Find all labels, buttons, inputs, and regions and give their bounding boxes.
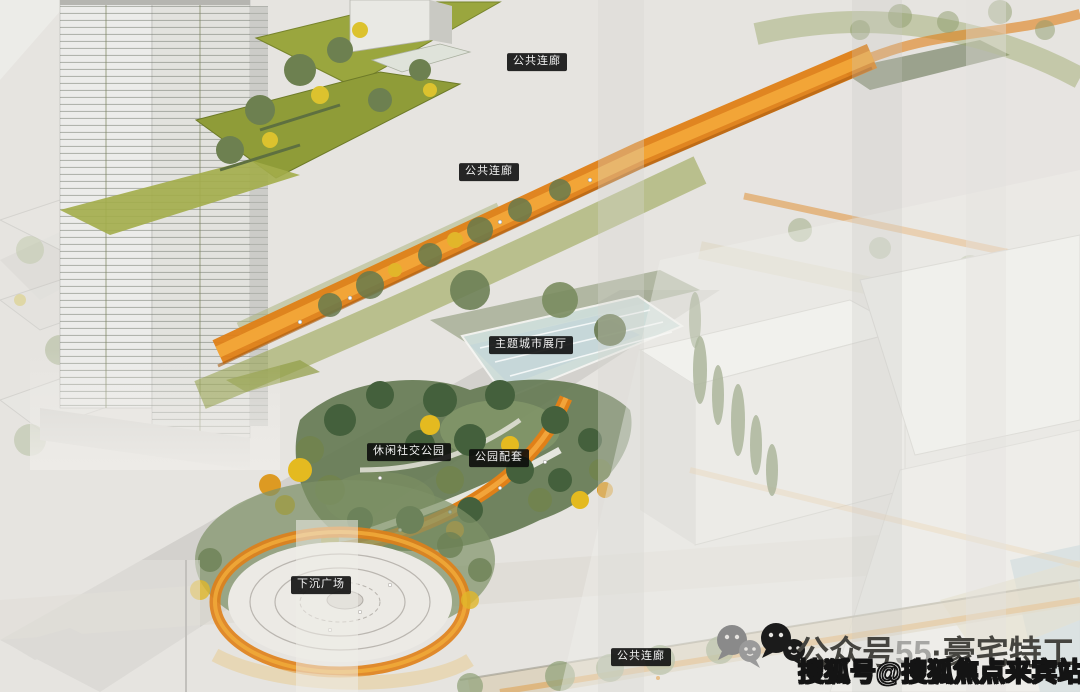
label-public-corridor-mid: 公共连廊 [459,163,519,181]
label-public-corridor-top: 公共连廊 [507,53,567,71]
label-leisure-social-park: 休闲社交公园 [367,443,451,461]
label-public-corridor-bottom: 公共连廊 [611,648,671,666]
wechat-bubbles-gray [717,625,761,668]
sohu-watermark: 搜狐号@搜狐焦点来宾站 [798,652,1080,689]
label-exhibition-hall: 主题城市展厅 [489,336,573,354]
label-sunken-plaza: 下沉广场 [291,576,351,594]
label-park-amenities: 公园配套 [469,449,529,467]
